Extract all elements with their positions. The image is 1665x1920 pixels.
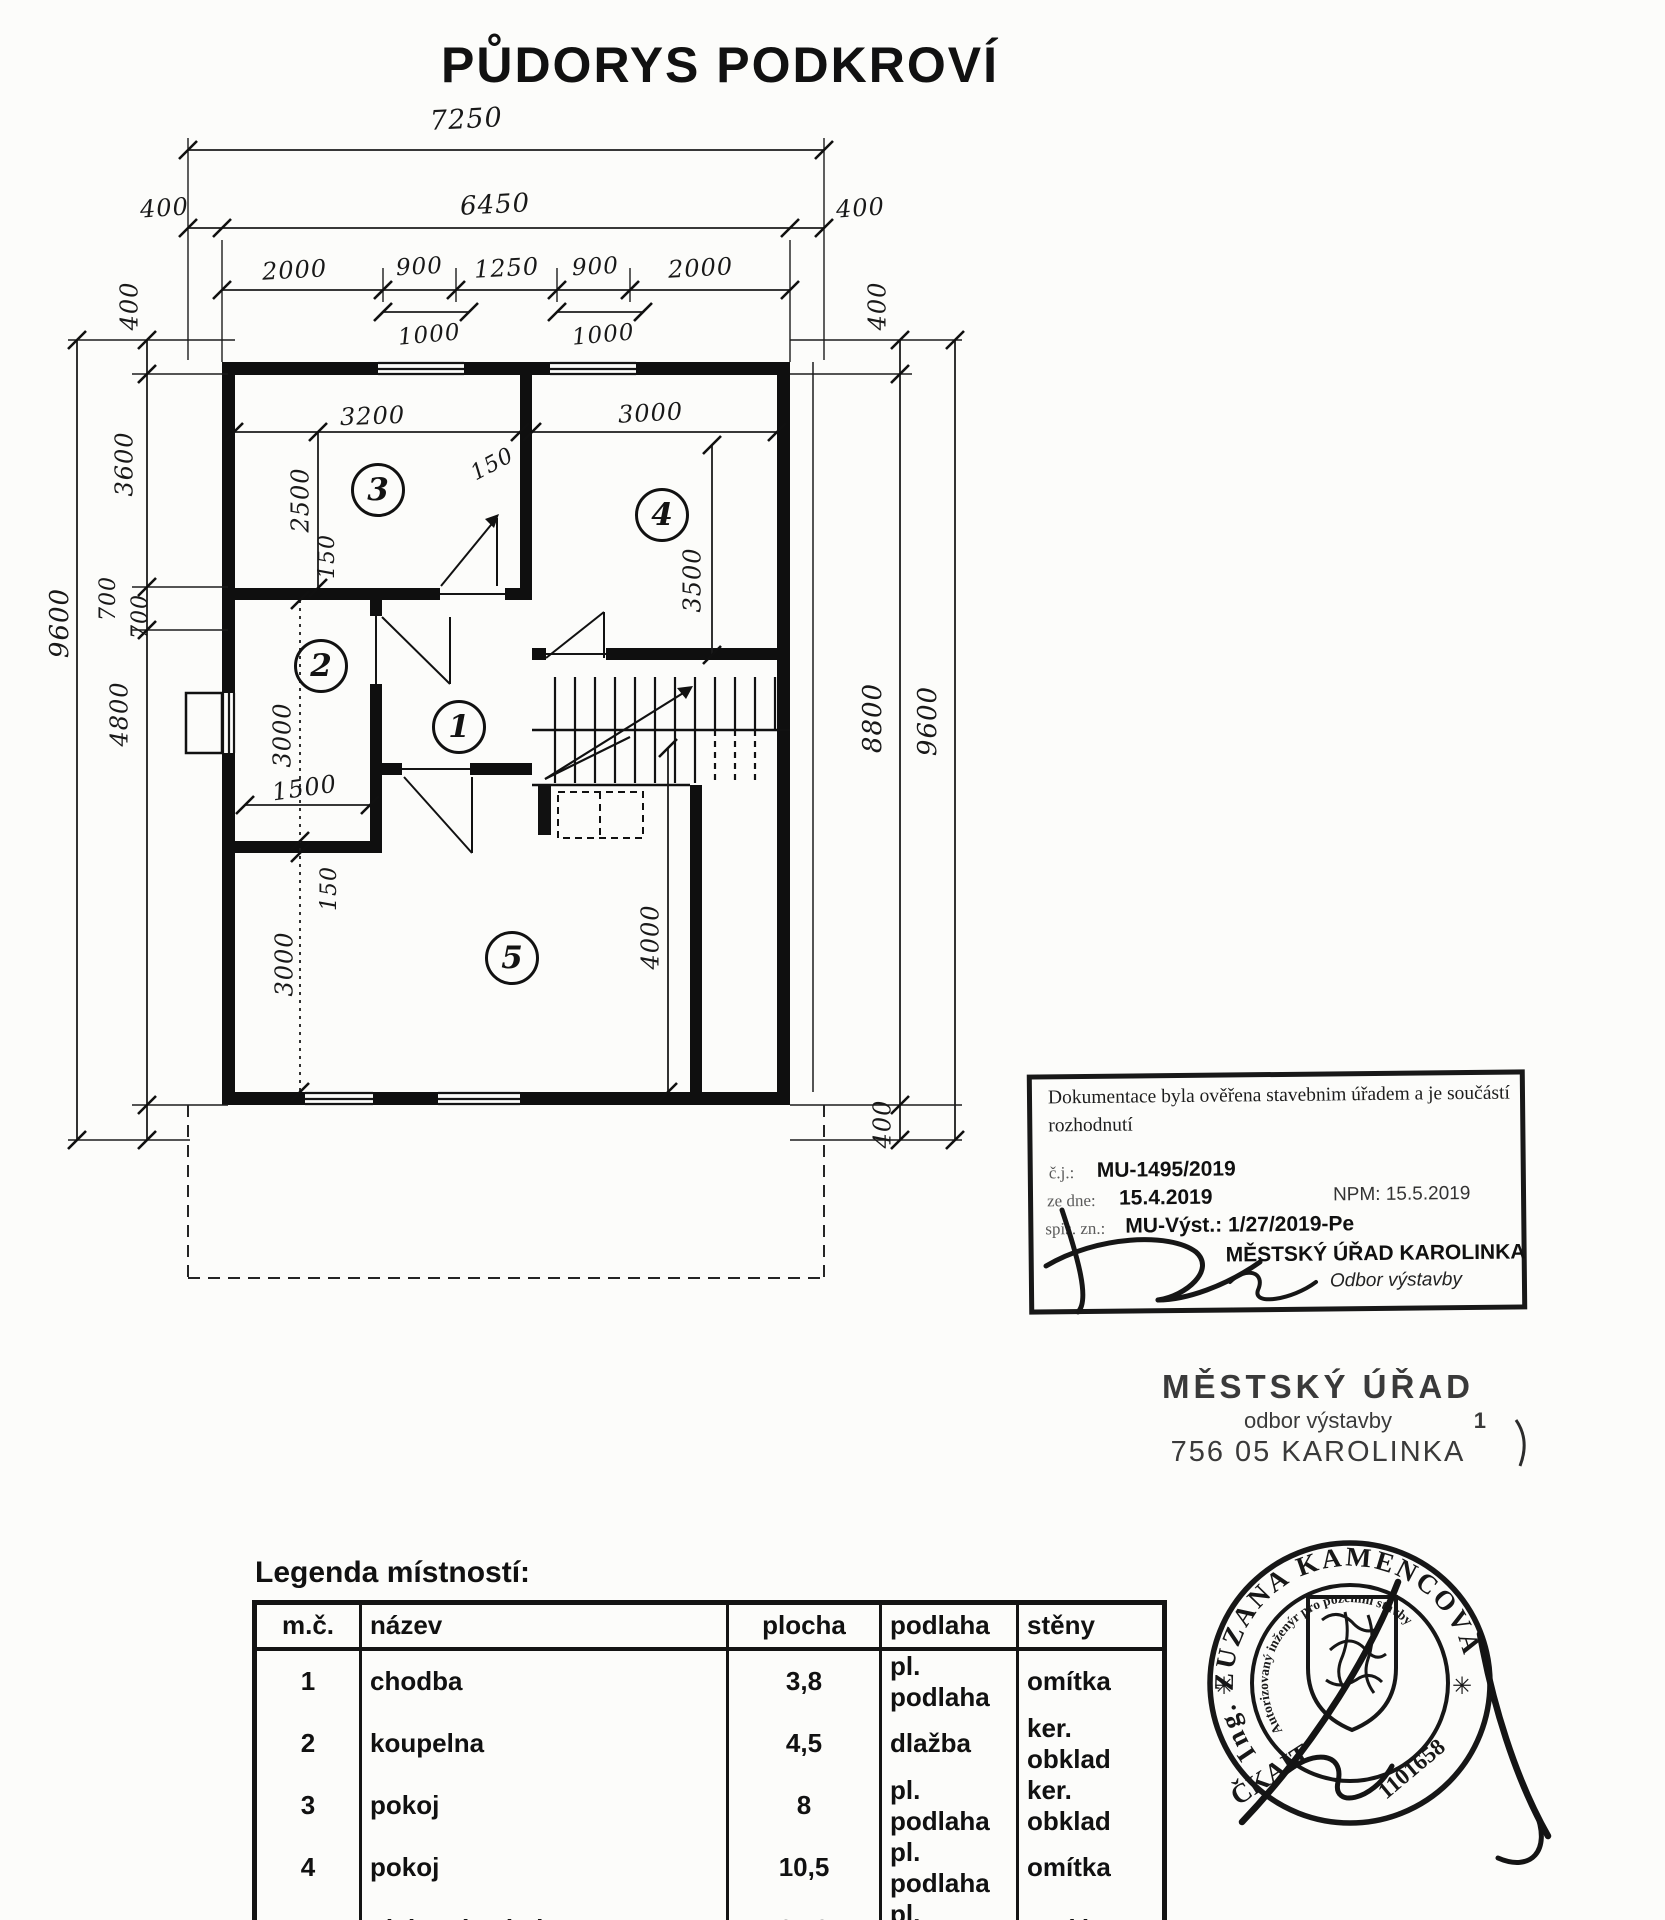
dim-room2-height: 3000 [269,702,297,767]
dim-left-700-b: 700 [128,594,153,639]
room-circle-3: 3 [351,463,405,517]
cell-room-number: 2 [255,1713,361,1775]
office-stamp-dept-text: odbor výstavby [1244,1408,1392,1433]
seal-inner-text: Autorizovaný inženýr pro pozemní stavby [1256,1590,1416,1737]
cell-room-number: 3 [255,1775,361,1837]
dim-seg-2000-a: 2000 [261,254,327,285]
dim-wall-150-top: 150 [467,443,518,486]
dim-top-total: 7250 [429,102,503,137]
spis-label: spis. zn.: [1045,1219,1105,1240]
dim-wall-150-low: 150 [317,866,342,911]
legend-row: 2 koupelna 4,5 dlažba ker. obklad [255,1713,1165,1775]
room-circle-2: 2 [294,639,348,693]
scanned-floor-plan-sheet: PŮDORYS PODKROVÍ 7250 400 6450 400 2000 … [0,0,1665,1920]
dim-sub-1000-left: 1000 [397,319,462,350]
approval-stamp-box: Dokumentace byla ověřena stavebnim úřade… [1027,1069,1527,1314]
dim-room4-width: 3000 [617,397,683,428]
cell-name: pokoj [361,1775,728,1837]
dimension-lines [68,138,962,1140]
office-stamp-dept: odbor výstavby 1 [1148,1408,1488,1434]
room-number: 1 [448,709,470,745]
cell-walls: omítka [1018,1837,1165,1899]
dim-room5-height-left: 3000 [271,931,299,996]
dim-top-offset-right: 400 [835,192,886,223]
cell-floor: pl. podlaha [881,1775,1018,1837]
legend-title: Legenda místností: [255,1556,530,1590]
dim-room5-height-right: 4000 [637,904,665,969]
cj-label: č.j.: [1049,1163,1075,1183]
cell-area: 24,8 [728,1899,881,1920]
seal-ring-text: Ing. ZUZANA KAMENCOVÁ [1209,1541,1488,1767]
cell-floor: pl. podlaha [881,1649,1018,1713]
dim-right-bottom-400: 400 [868,1100,896,1149]
cell-room-number: 1 [255,1649,361,1713]
stamp-bracket-mark [1516,1420,1524,1466]
seal-number: 1101658 [1373,1734,1450,1804]
dim-left-700-a: 700 [96,576,121,621]
dim-sub-1000-right: 1000 [571,319,636,350]
stairs [532,677,790,838]
cell-walls: ker. obklad [1018,1713,1165,1775]
cell-room-number: 4 [255,1837,361,1899]
dim-seg-900-b: 900 [571,253,619,281]
dim-seg-2000-b: 2000 [667,252,733,283]
cell-walls: omítka [1018,1899,1165,1920]
dim-top-offset-left: 400 [139,192,190,223]
cell-area: 8 [728,1775,881,1837]
cj-value: MU-1495/2019 [1097,1157,1236,1182]
room-circle-4: 4 [635,488,689,542]
seal-star-left-icon: ✳ [1214,1673,1234,1700]
cell-floor: pl. podlaha [881,1899,1018,1920]
dimension-ticks [68,141,964,1149]
dim-room3-height: 2500 [287,467,315,532]
door-openings [376,594,606,769]
col-name: název [361,1603,728,1649]
spis-value: MU-Výst.: 1/27/2019-Pe [1125,1212,1354,1238]
dim-top-width: 6450 [459,188,531,222]
seal-org: ČKAIT [1225,1738,1316,1811]
office-stamp-name: MĚSTSKÝ ÚŘAD [1148,1368,1488,1406]
col-floor: podlaha [881,1603,1018,1649]
approval-line1: Dokumentace byla ověřena stavebnim úřade… [1048,1083,1510,1110]
room-number: 5 [501,940,523,976]
office-stamp: MĚSTSKÝ ÚŘAD odbor výstavby 1 756 05 KAR… [1148,1368,1488,1469]
cell-name: pokoj [361,1837,728,1899]
dim-room3-width: 3200 [340,401,406,431]
dim-left-top-400: 400 [115,282,143,331]
legend-table: m.č. název plocha podlaha stěny 1 chodba… [252,1600,1167,1920]
dim-seg-900-a: 900 [395,253,443,281]
cell-floor: pl. podlaha [881,1837,1018,1899]
room-circle-1: 1 [432,700,486,754]
approval-office-name: MĚSTSKÝ ÚŘAD KAROLINKA [1226,1240,1526,1267]
cell-room-number: 5 [255,1899,361,1920]
seal-star-right-icon: ✳ [1452,1673,1472,1700]
legend-row: 3 pokoj 8 pl. podlaha ker. obklad [255,1775,1165,1837]
cell-area: 4,5 [728,1713,881,1775]
windows [186,360,636,1107]
office-stamp-address: 756 05 KAROLINKA [1148,1436,1488,1469]
dim-room2-width: 1500 [270,770,338,807]
engineer-signature [1242,1582,1548,1862]
cell-floor: dlažba [881,1713,1018,1775]
approval-dept-name: Odbor výstavby [1330,1269,1462,1292]
svg-text:Autorizovaný inženýr pro pozem: Autorizovaný inženýr pro pozemní stavby [1256,1590,1416,1737]
npm-date: NPM: 15.5.2019 [1333,1183,1471,1206]
roof-outline [188,1105,824,1278]
room-number: 2 [310,648,332,684]
page-title: PŮDORYS PODKROVÍ [440,36,1000,94]
dim-room4-height: 3500 [679,547,707,612]
cell-walls: omítka [1018,1649,1165,1713]
dim-right-span: 8800 [858,683,888,753]
dim-left-total: 9600 [45,588,75,658]
door-swings [382,514,604,853]
dim-right-total: 9600 [913,686,943,756]
room-number: 3 [367,472,389,508]
legend-row: 5 obývací pokoj 24,8 pl. podlaha omítka [255,1899,1165,1920]
legend-row: 1 chodba 3,8 pl. podlaha omítka [255,1649,1165,1713]
date-label: ze dne: [1047,1191,1096,1212]
cell-walls: ker. obklad [1018,1775,1165,1837]
dim-left-4800: 4800 [106,681,134,746]
cell-name: obývací pokoj [361,1899,728,1920]
svg-text:Ing. ZUZANA KAMENCOVÁ: Ing. ZUZANA KAMENCOVÁ [1209,1541,1488,1767]
date-value: 15.4.2019 [1119,1186,1213,1211]
authorization-seal: Ing. ZUZANA KAMENCOVÁ Autorizovaný inžen… [1209,1541,1490,1823]
office-stamp-number: 1 [1474,1408,1486,1434]
approval-line2: rozhodnutí [1048,1115,1133,1138]
cell-area: 10,5 [728,1837,881,1899]
dim-right-top-400: 400 [863,282,891,331]
cell-name: koupelna [361,1713,728,1775]
col-area: plocha [728,1603,881,1649]
col-room-number: m.č. [255,1603,361,1649]
dim-seg-1250: 1250 [473,252,539,283]
dim-wall-150-mid: 150 [315,534,340,579]
seal-shield-emblem [1308,1597,1396,1730]
col-walls: stěny [1018,1603,1165,1649]
legend-row: 4 pokoj 10,5 pl. podlaha omítka [255,1837,1165,1899]
room-circle-5: 5 [485,931,539,985]
legend-header-row: m.č. název plocha podlaha stěny [255,1603,1165,1649]
cell-area: 3,8 [728,1649,881,1713]
cell-name: chodba [361,1649,728,1713]
room-number: 4 [651,497,673,533]
dim-left-3600: 3600 [111,431,139,496]
